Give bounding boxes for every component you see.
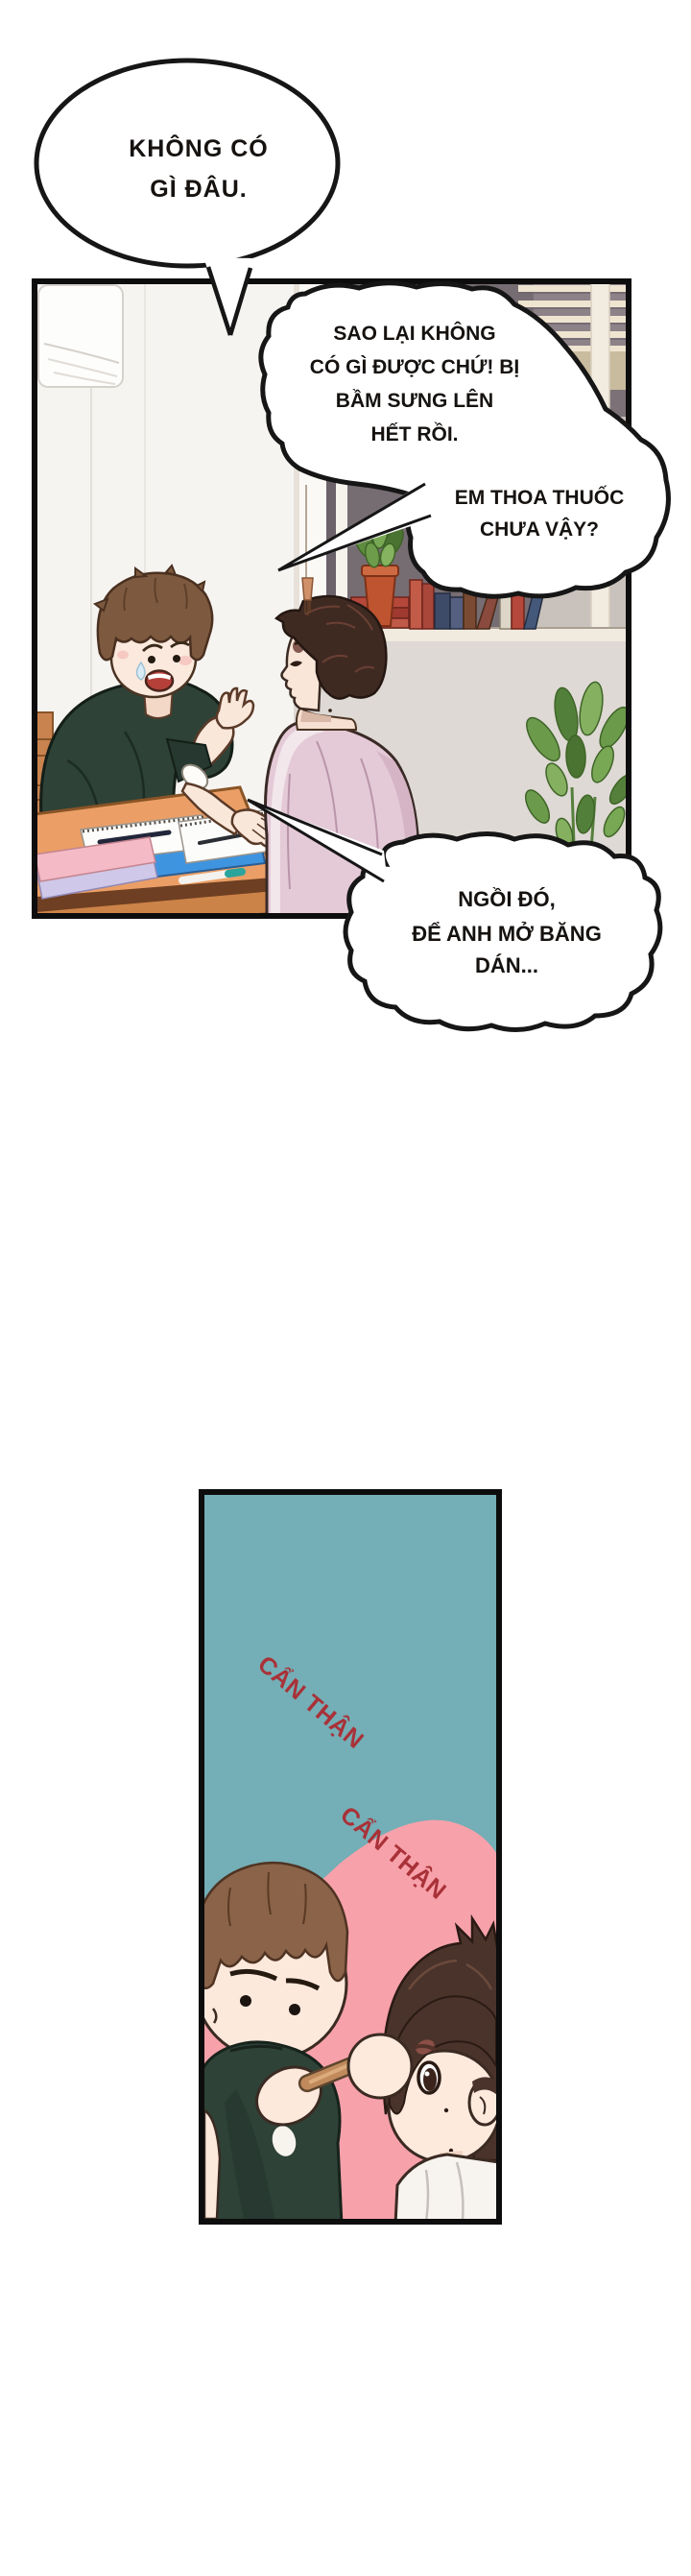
svg-text:DÁN...: DÁN... bbox=[475, 953, 538, 977]
svg-text:EM THOA THUỐC: EM THOA THUỐC bbox=[455, 486, 625, 509]
svg-text:BẦM SƯNG LÊN: BẦM SƯNG LÊN bbox=[336, 389, 493, 412]
svg-text:HẾT RỒI.: HẾT RỒI. bbox=[370, 422, 458, 445]
svg-text:ĐỂ ANH MỞ BĂNG: ĐỂ ANH MỞ BĂNG bbox=[412, 922, 602, 946]
svg-text:GÌ ĐÂU.: GÌ ĐÂU. bbox=[150, 174, 247, 203]
svg-text:SAO LẠI KHÔNG: SAO LẠI KHÔNG bbox=[333, 322, 495, 345]
svg-text:CÓ GÌ ĐƯỢC CHỨ! BỊ: CÓ GÌ ĐƯỢC CHỨ! BỊ bbox=[310, 355, 519, 378]
svg-text:CHƯA VẬY?: CHƯA VẬY? bbox=[480, 518, 599, 541]
svg-text:NGỒI ĐÓ,: NGỒI ĐÓ, bbox=[458, 887, 555, 911]
svg-text:KHÔNG CÓ: KHÔNG CÓ bbox=[129, 133, 269, 162]
